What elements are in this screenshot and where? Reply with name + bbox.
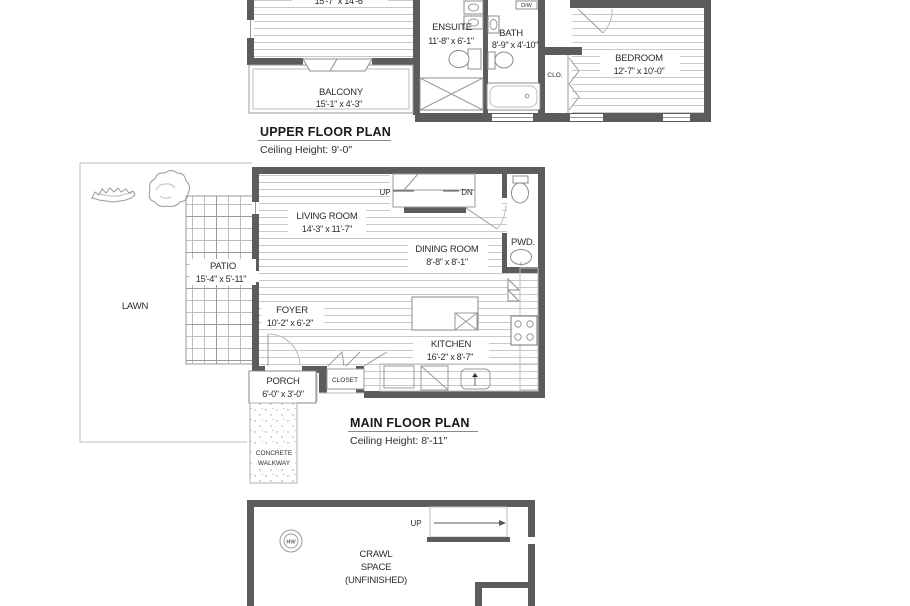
balcony-dims: 15'-1" x 4'-3" [316, 99, 362, 109]
kitchen-dims: 16'-2" x 8'-7" [427, 352, 473, 362]
porch-label: PORCH [266, 376, 300, 387]
hw-label: HW [286, 540, 296, 546]
clo-label: CLO. [547, 72, 562, 79]
crawl-label-line1: CRAWL [360, 549, 393, 560]
main-ceiling-height: Ceiling Height: 8'-11" [350, 435, 447, 447]
bath-label: BATH [499, 28, 523, 39]
bath-dims: 8'-9" x 4'-10" [492, 40, 538, 50]
main-plan-title: MAIN FLOOR PLAN [350, 416, 470, 430]
toilet-icon [512, 176, 529, 203]
closet-label: CLOSET [332, 377, 358, 384]
upper-title-block: UPPER FLOOR PLAN Ceiling Height: 9'-0" [258, 125, 391, 156]
bedroom-dims: 12'-7" x 10'-0" [614, 66, 665, 76]
ensuite-dims: 11'-8" x 6'-1" [428, 36, 474, 46]
shower-icon [420, 78, 483, 110]
lawn-label: LAWN [122, 301, 149, 312]
stove-icon [511, 316, 537, 345]
crawl-space-plan: HW UP CRAWL SPACE (UNFINISHED) [247, 500, 535, 606]
shrub-icon [92, 188, 135, 202]
floor-plan-page: 15'-7" x 14'-6" BALCONY 15'-1" x 4'-3" E… [0, 0, 910, 606]
upper-plan-title: UPPER FLOOR PLAN [260, 125, 391, 139]
crawl-label-line2: SPACE [361, 562, 392, 573]
floor-plan-canvas: 15'-7" x 14'-6" BALCONY 15'-1" x 4'-3" E… [0, 0, 910, 606]
master-bedroom-dims: 15'-7" x 14'-6" [315, 0, 366, 6]
bathtub-icon [487, 83, 540, 110]
stairs-up-label: UP [379, 188, 390, 197]
foyer-dims: 10'-2" x 6'-2" [267, 318, 313, 328]
hot-water-tank-icon: HW [280, 530, 302, 552]
crawl-up-label: UP [410, 519, 421, 528]
tree-icon [149, 171, 189, 207]
patio-label: PATIO [210, 261, 236, 272]
crawl-stairs [427, 507, 510, 542]
porch-dims: 6'-0" x 3'-0" [262, 389, 304, 399]
kitchen-island [412, 297, 478, 330]
walkway-label-line1: CONCRETE [256, 450, 293, 457]
main-floor-plan: LIVING ROOM 14'-3" x 11'-7" DINING ROOM … [80, 163, 545, 483]
master-bedroom-floor [254, 0, 413, 58]
sliding-door-icon [303, 59, 372, 71]
balcony-label: BALCONY [319, 87, 364, 98]
crawl-label-line3: (UNFINISHED) [345, 575, 407, 586]
window [247, 20, 254, 38]
walkway-label-line2: WALKWAY [258, 460, 291, 467]
ensuite-label: ENSUITE [432, 22, 472, 33]
toilet-icon [449, 49, 481, 69]
bedroom-label: BEDROOM [615, 53, 663, 64]
living-room-label: LIVING ROOM [296, 211, 357, 222]
stairs-down-label: DN [461, 188, 473, 197]
kitchen-floor-boards [364, 366, 538, 391]
patio-dims: 15'-4" x 5'-11" [196, 274, 246, 284]
living-room-dims: 14'-3" x 11'-7" [302, 224, 352, 234]
main-title-block: MAIN FLOOR PLAN Ceiling Height: 8'-11" [348, 416, 478, 447]
dw-label: D/W [521, 3, 533, 9]
dining-room-label: DINING ROOM [415, 244, 479, 255]
foyer-label: FOYER [276, 305, 308, 316]
powder-room-label: PWD. [511, 237, 535, 248]
toilet-icon [488, 52, 513, 69]
dining-room-dims: 8'-8" x 8'-1" [426, 257, 468, 267]
bath-sink-icon [488, 16, 499, 33]
upper-ceiling-height: Ceiling Height: 9'-0" [260, 144, 352, 156]
upper-floor-plan: 15'-7" x 14'-6" BALCONY 15'-1" x 4'-3" E… [247, 0, 711, 122]
concrete-walkway [250, 403, 297, 483]
kitchen-label: KITCHEN [431, 339, 472, 350]
